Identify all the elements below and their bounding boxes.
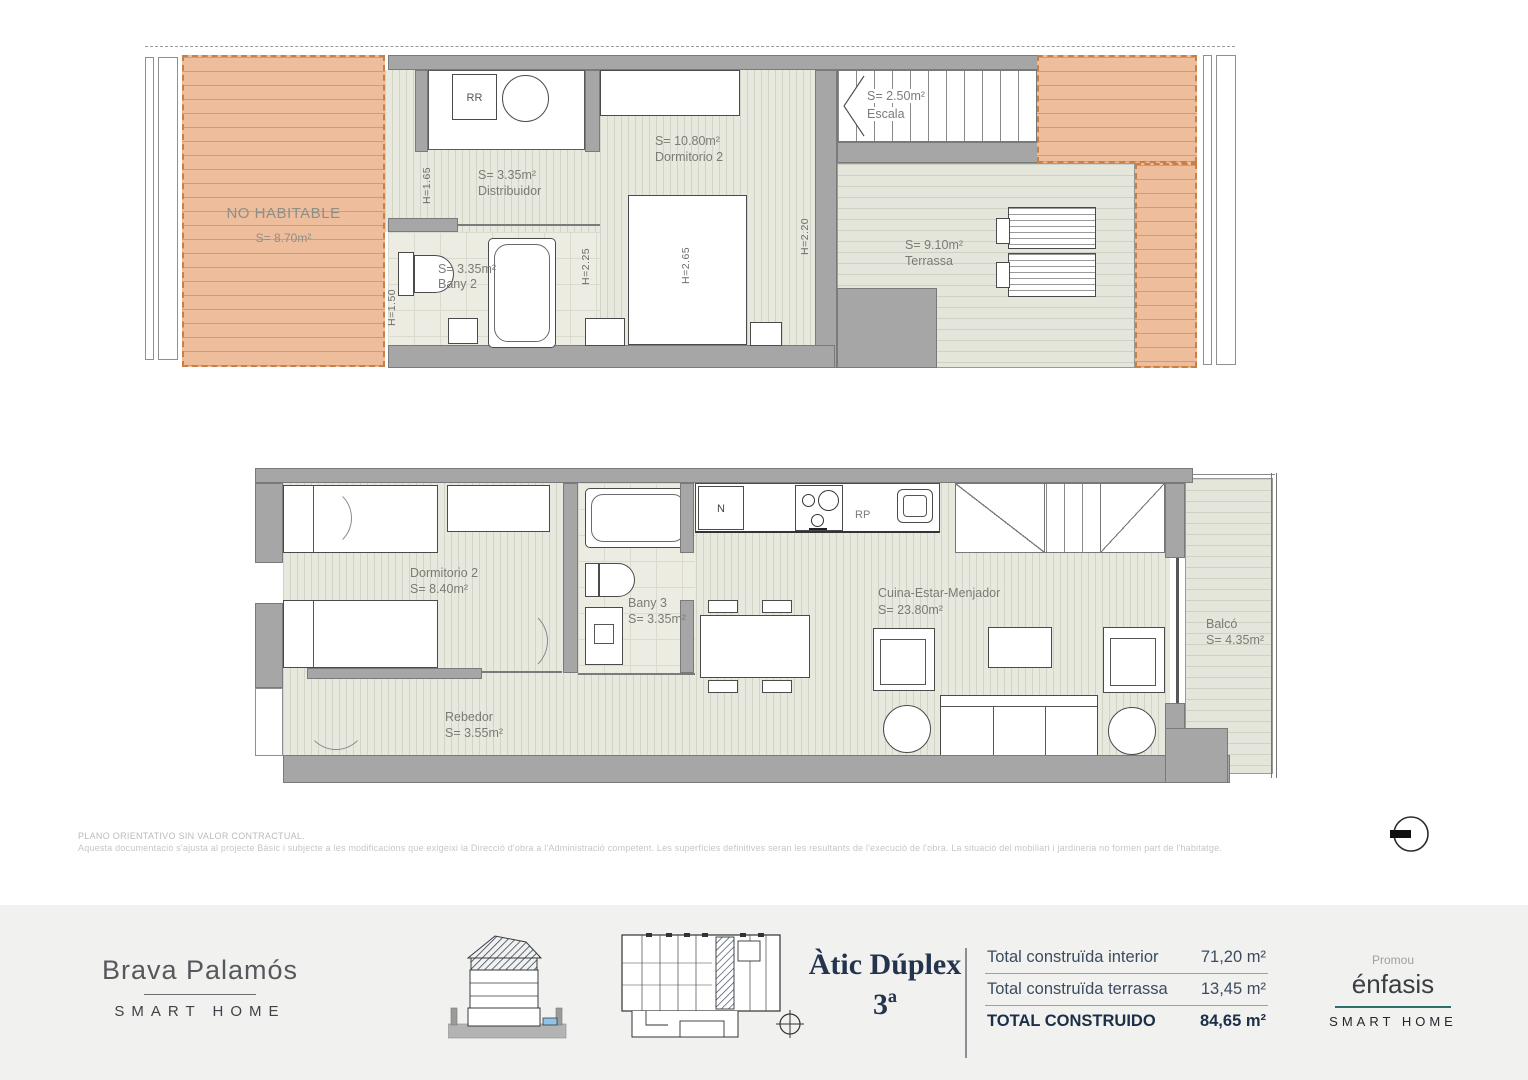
totals-value: 71,20 m² bbox=[1201, 948, 1266, 967]
terrace-table bbox=[1008, 207, 1096, 249]
promoter-name: énfasis bbox=[1318, 969, 1468, 1000]
bathtub bbox=[585, 488, 691, 548]
rr-unit: RR bbox=[452, 74, 497, 120]
brand-title: Brava Palamós bbox=[90, 955, 310, 986]
height-label: H=2.65 bbox=[680, 228, 692, 284]
promoter-pre: Promou bbox=[1318, 953, 1468, 967]
armchair-seat bbox=[1110, 638, 1156, 686]
balco-name: Balcó bbox=[1206, 616, 1237, 632]
kitchen-sink-inner bbox=[903, 495, 927, 517]
dormitorio2-lower-area: S= 8.40m² bbox=[410, 581, 468, 597]
terrassa-area: S= 9.10m² bbox=[905, 237, 963, 253]
wall-segment bbox=[680, 483, 694, 553]
bany2-area: S= 3.35m² bbox=[438, 261, 496, 277]
upper-deck-right bbox=[1037, 55, 1197, 163]
door-lintel-line bbox=[458, 224, 600, 226]
bany3-area: S= 3.35m² bbox=[628, 611, 686, 627]
wall-segment bbox=[415, 70, 428, 152]
balcony-rail-line bbox=[1185, 474, 1275, 475]
door-swing-arc bbox=[482, 608, 548, 674]
wall-segment bbox=[563, 483, 578, 673]
totals-value: 13,45 m² bbox=[1201, 980, 1266, 999]
wall-segment bbox=[837, 142, 1040, 163]
toilet-bowl bbox=[599, 563, 635, 597]
stairs-landing bbox=[1100, 483, 1165, 553]
bathtub bbox=[488, 238, 556, 348]
bany3-wall-line bbox=[578, 673, 695, 675]
no-habitable-label: NO HABITABLE bbox=[184, 205, 383, 222]
upper-plan-boundary-dash bbox=[145, 46, 1235, 47]
stairs-direction-arrow-icon bbox=[840, 74, 866, 138]
escala-name: Escala bbox=[865, 106, 907, 122]
bathtub-inner bbox=[591, 494, 685, 542]
dormitorio2-upper-area: S= 10.80m² bbox=[655, 133, 720, 149]
north-scale-icon bbox=[1386, 810, 1434, 858]
party-wall-strip bbox=[1203, 55, 1212, 365]
distribuidor-name: Distribuidor bbox=[478, 183, 541, 199]
promoter-logo: Promou énfasis SMART HOME bbox=[1318, 953, 1468, 1029]
unit-title-block: Àtic Dúplex 3ª bbox=[800, 948, 970, 1022]
terrace-chair bbox=[996, 218, 1010, 244]
totals-label: TOTAL CONSTRUIDO bbox=[987, 1012, 1156, 1031]
sink bbox=[448, 318, 478, 344]
rp-label: RP bbox=[855, 508, 870, 522]
armchair bbox=[1103, 627, 1165, 693]
escala-area: S= 2.50m² bbox=[865, 88, 927, 104]
washer-icon bbox=[502, 75, 549, 122]
brand-logo: Brava Palamós SMART HOME bbox=[90, 955, 310, 1020]
wall-segment bbox=[1165, 728, 1228, 783]
nightstand bbox=[585, 318, 625, 346]
sink-cabinet bbox=[585, 607, 623, 665]
building-section-icon bbox=[448, 928, 568, 1046]
toilet-tank bbox=[398, 252, 414, 296]
dining-table bbox=[700, 615, 810, 678]
stairs-landing bbox=[955, 483, 1045, 553]
wall-segment bbox=[815, 70, 837, 368]
brand-subtitle: SMART HOME bbox=[90, 1003, 310, 1020]
hob-burner bbox=[802, 494, 815, 507]
dining-chair bbox=[762, 600, 792, 613]
totals-value: 84,65 m² bbox=[1200, 1012, 1266, 1031]
height-label: H=1.65 bbox=[421, 158, 433, 204]
fridge: N bbox=[698, 486, 744, 530]
party-wall-strip bbox=[145, 57, 154, 360]
terrace-chair bbox=[996, 262, 1010, 288]
bed bbox=[283, 600, 438, 668]
door-swing-arc bbox=[305, 688, 367, 750]
fridge-label: N bbox=[717, 503, 725, 515]
hob-burner bbox=[818, 490, 839, 511]
balcony-railing bbox=[1271, 473, 1277, 778]
upper-deck-no-habitable: NO HABITABLE S= 8.70m² bbox=[182, 55, 385, 367]
closet bbox=[447, 485, 550, 532]
disclaimer-line2: Aquesta documentació s'ajusta al project… bbox=[78, 843, 1222, 853]
no-habitable-area: S= 8.70m² bbox=[184, 231, 383, 245]
wall-segment bbox=[388, 218, 458, 232]
bany3-name: Bany 3 bbox=[628, 595, 667, 611]
armchair bbox=[873, 628, 935, 691]
wall-segment bbox=[837, 288, 937, 368]
disclaimer-line1: PLANO ORIENTATIVO SIN VALOR CONTRACTUAL. bbox=[78, 831, 305, 841]
sofa bbox=[940, 695, 1098, 757]
rebedor-name: Rebedor bbox=[445, 709, 493, 725]
cuina-area: S= 23.80m² bbox=[878, 602, 943, 618]
bathtub-inner bbox=[494, 244, 550, 342]
dining-chair bbox=[708, 680, 738, 693]
terrassa-name: Terrassa bbox=[905, 253, 953, 269]
hob-icon bbox=[795, 485, 843, 531]
height-label: H=2.20 bbox=[799, 205, 811, 255]
promoter-divider bbox=[1335, 1006, 1451, 1008]
sofa-seat-line bbox=[1045, 706, 1046, 758]
height-label: H=2.25 bbox=[580, 235, 592, 285]
dormitorio2-lower-name: Dormitorio 2 bbox=[410, 565, 478, 581]
totals-divider bbox=[965, 948, 967, 1058]
hob-bar bbox=[809, 528, 827, 530]
unit-title: Àtic Dúplex bbox=[800, 948, 970, 982]
armchair-seat bbox=[880, 639, 926, 685]
bed-pillow-line bbox=[284, 601, 314, 667]
wall-segment bbox=[255, 483, 283, 563]
dormitorio2-upper-name: Dormitorio 2 bbox=[655, 149, 723, 165]
party-wall-strip bbox=[1216, 55, 1236, 365]
brand-divider bbox=[144, 994, 256, 995]
cuina-name: Cuina-Estar-Menjador bbox=[878, 585, 1000, 601]
kitchen-sink bbox=[897, 489, 933, 523]
entry-threshold bbox=[255, 688, 283, 756]
toilet-tank bbox=[585, 563, 599, 597]
terrace-table bbox=[1008, 253, 1096, 297]
totals-label: Total construïda terrassa bbox=[987, 980, 1168, 999]
sofa-back-line bbox=[941, 706, 1097, 707]
wall-segment bbox=[255, 468, 1193, 483]
height-label: H=1.50 bbox=[386, 280, 398, 326]
wall-segment bbox=[1165, 483, 1185, 558]
totals-row-interior: Total construïda interior 71,20 m² bbox=[985, 942, 1268, 973]
coffee-table bbox=[988, 627, 1052, 668]
balcony-window-frame bbox=[1176, 558, 1179, 703]
wall-segment bbox=[307, 668, 482, 679]
totals-row-terrassa: Total construïda terrassa 13,45 m² bbox=[985, 974, 1268, 1005]
door-swing-arc bbox=[290, 487, 352, 549]
dining-chair bbox=[708, 600, 738, 613]
rr-label: RR bbox=[467, 92, 483, 104]
hob-burner bbox=[811, 514, 824, 527]
totals-table: Total construïda interior 71,20 m² Total… bbox=[985, 942, 1268, 1037]
side-table-round bbox=[1108, 707, 1156, 755]
unit-floor: 3ª bbox=[800, 988, 970, 1022]
dining-chair bbox=[762, 680, 792, 693]
sink-basin bbox=[594, 624, 614, 644]
party-wall-strip bbox=[158, 57, 178, 360]
nightstand bbox=[750, 322, 782, 346]
distribuidor-area: S= 3.35m² bbox=[478, 167, 536, 183]
wall-segment bbox=[388, 345, 835, 368]
wall-segment bbox=[255, 603, 283, 688]
building-plan-key-icon bbox=[620, 933, 782, 1045]
rebedor-area: S= 3.55m² bbox=[445, 725, 503, 741]
closet bbox=[600, 70, 740, 116]
coffee-table-round bbox=[883, 705, 931, 753]
sofa-seat-line bbox=[993, 706, 994, 758]
totals-row-total: TOTAL CONSTRUIDO 84,65 m² bbox=[985, 1006, 1268, 1037]
wall-segment bbox=[585, 70, 600, 152]
bany2-name: Bany 2 bbox=[438, 276, 477, 292]
upper-deck-right bbox=[1135, 163, 1197, 368]
balco-area: S= 4.35m² bbox=[1206, 632, 1264, 648]
wall-segment bbox=[388, 55, 1040, 70]
promoter-subtitle: SMART HOME bbox=[1318, 1014, 1468, 1029]
floor-plan-sheet: NO HABITABLE S= 8.70m² RR S= 3.35m² Dist… bbox=[0, 0, 1528, 1080]
wall-segment bbox=[283, 755, 1230, 783]
totals-label: Total construïda interior bbox=[987, 948, 1159, 967]
